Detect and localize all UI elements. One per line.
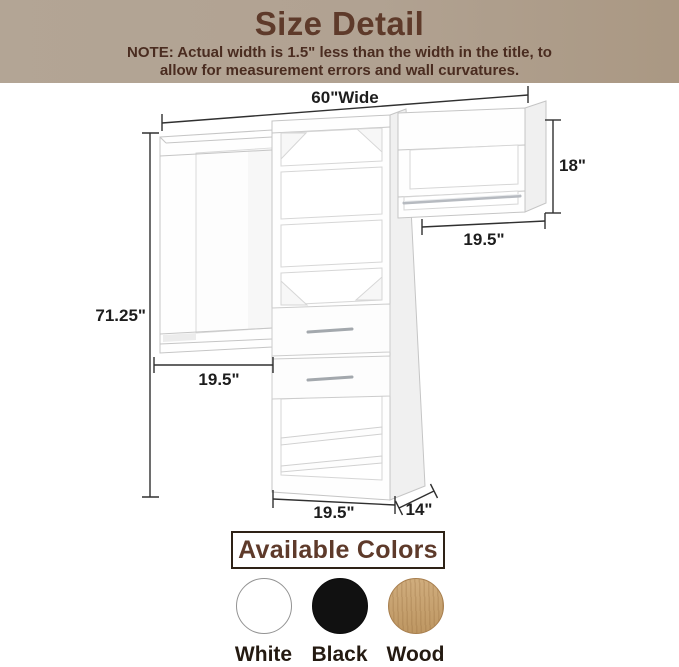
- left-hanging-unit: [160, 130, 272, 353]
- dim-tower-width-label: 19.5": [301, 503, 367, 523]
- dim-left-width-label: 19.5": [186, 370, 252, 390]
- wood-color-label: Wood: [387, 643, 445, 667]
- color-option-white: White: [234, 578, 294, 667]
- white-color-label: White: [235, 643, 292, 667]
- color-option-wood: Wood: [386, 578, 446, 667]
- right-wall-unit: [398, 101, 546, 218]
- available-colors-title: Available Colors: [238, 536, 438, 565]
- color-option-black: Black: [310, 578, 370, 667]
- color-options: White Black Wood: [0, 578, 679, 667]
- dim-total-height-label: 71.25": [84, 306, 146, 326]
- white-color-swatch: [236, 578, 292, 634]
- black-color-label: Black: [311, 643, 367, 667]
- wood-color-swatch: [388, 578, 444, 634]
- dim-right-height-label: 18": [559, 156, 586, 176]
- black-color-swatch: [312, 578, 368, 634]
- dim-top-width-label: 60"Wide: [285, 88, 405, 108]
- dim-tower-depth-label: 14": [396, 500, 442, 520]
- available-colors-title-box: Available Colors: [231, 531, 445, 569]
- dim-right-width-label: 19.5": [451, 230, 517, 250]
